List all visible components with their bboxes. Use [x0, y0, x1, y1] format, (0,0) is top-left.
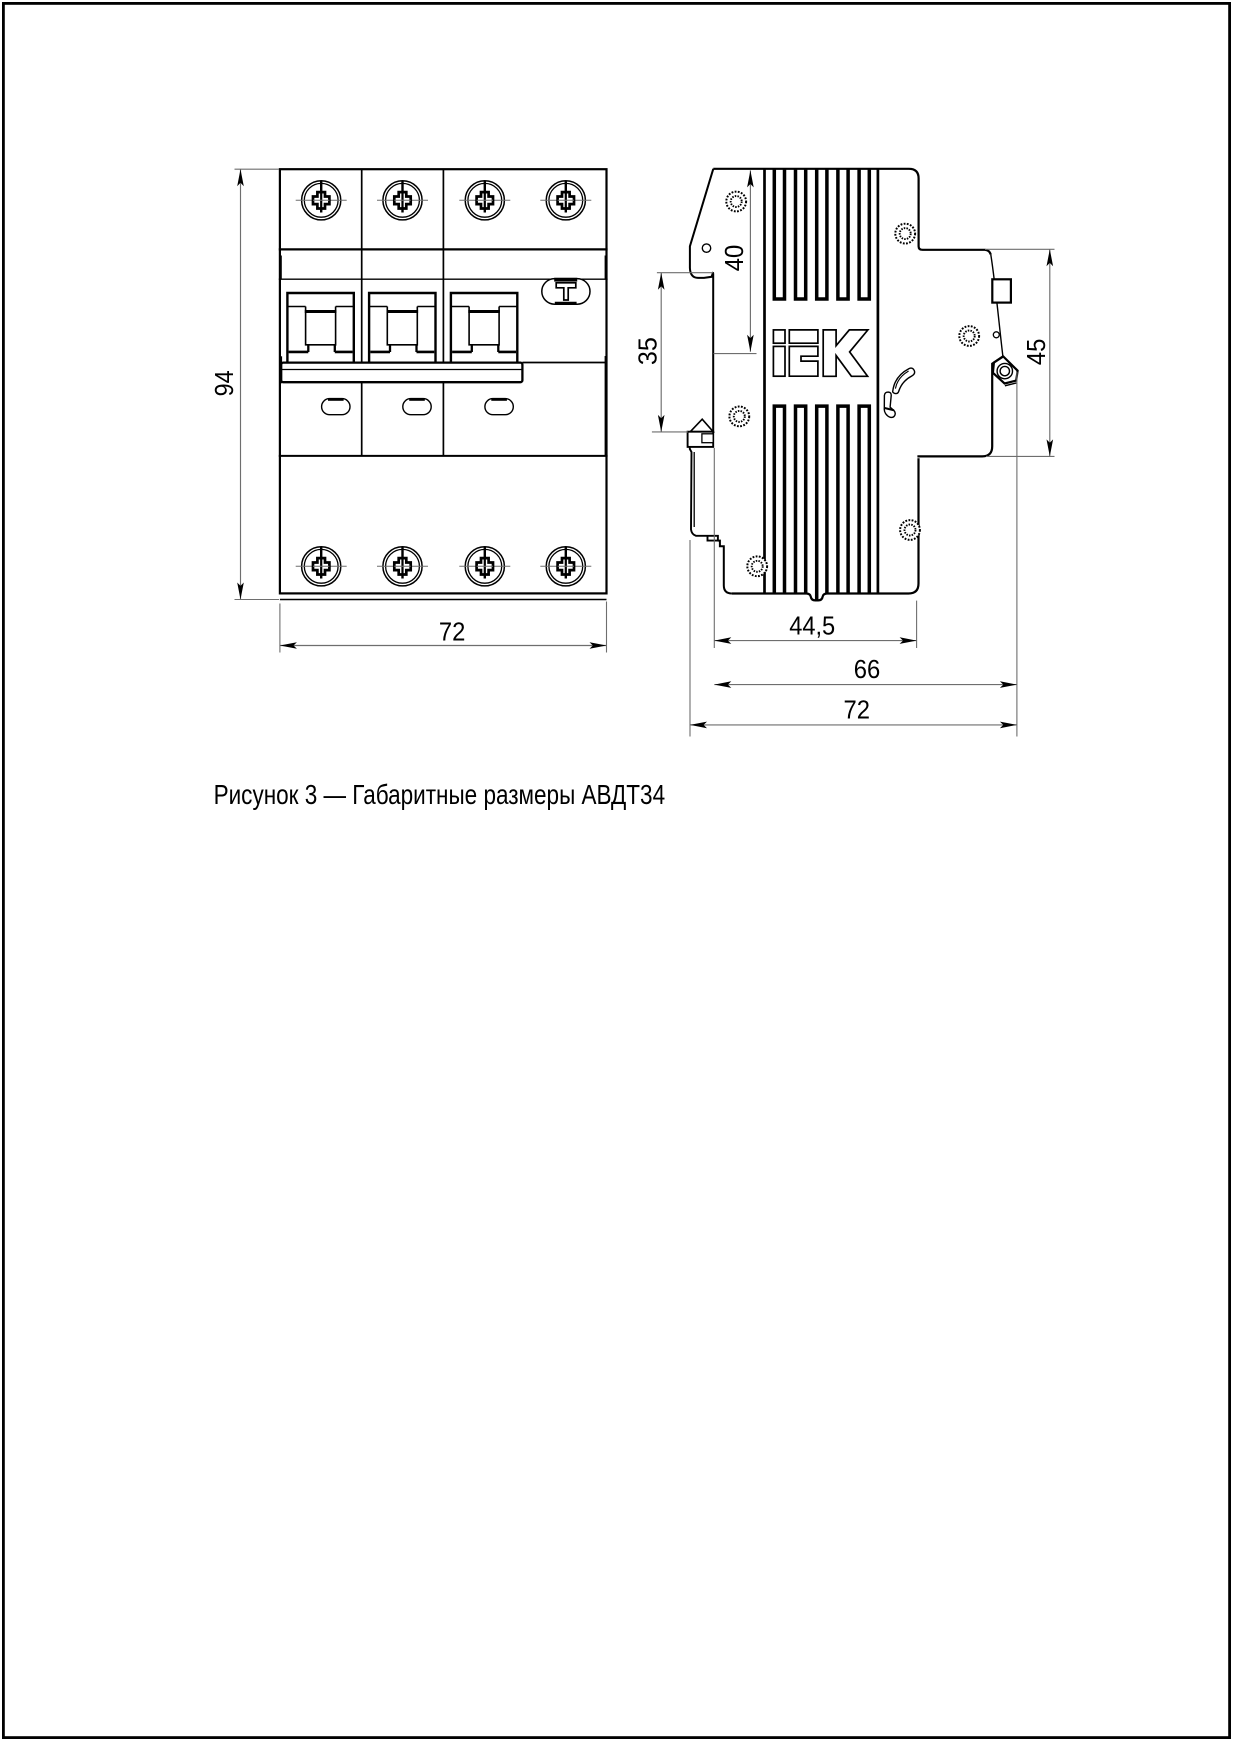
svg-text:45: 45 [1021, 339, 1051, 366]
svg-text:94: 94 [209, 370, 239, 396]
svg-text:Рисунок 3 — Габаритные размеры: Рисунок 3 — Габаритные размеры АВДТ34 [214, 779, 665, 810]
svg-text:72: 72 [844, 694, 871, 724]
svg-text:44,5: 44,5 [789, 611, 835, 641]
svg-text:72: 72 [439, 617, 466, 647]
svg-text:66: 66 [854, 654, 881, 684]
svg-text:35: 35 [633, 337, 663, 365]
svg-text:40: 40 [719, 245, 749, 272]
